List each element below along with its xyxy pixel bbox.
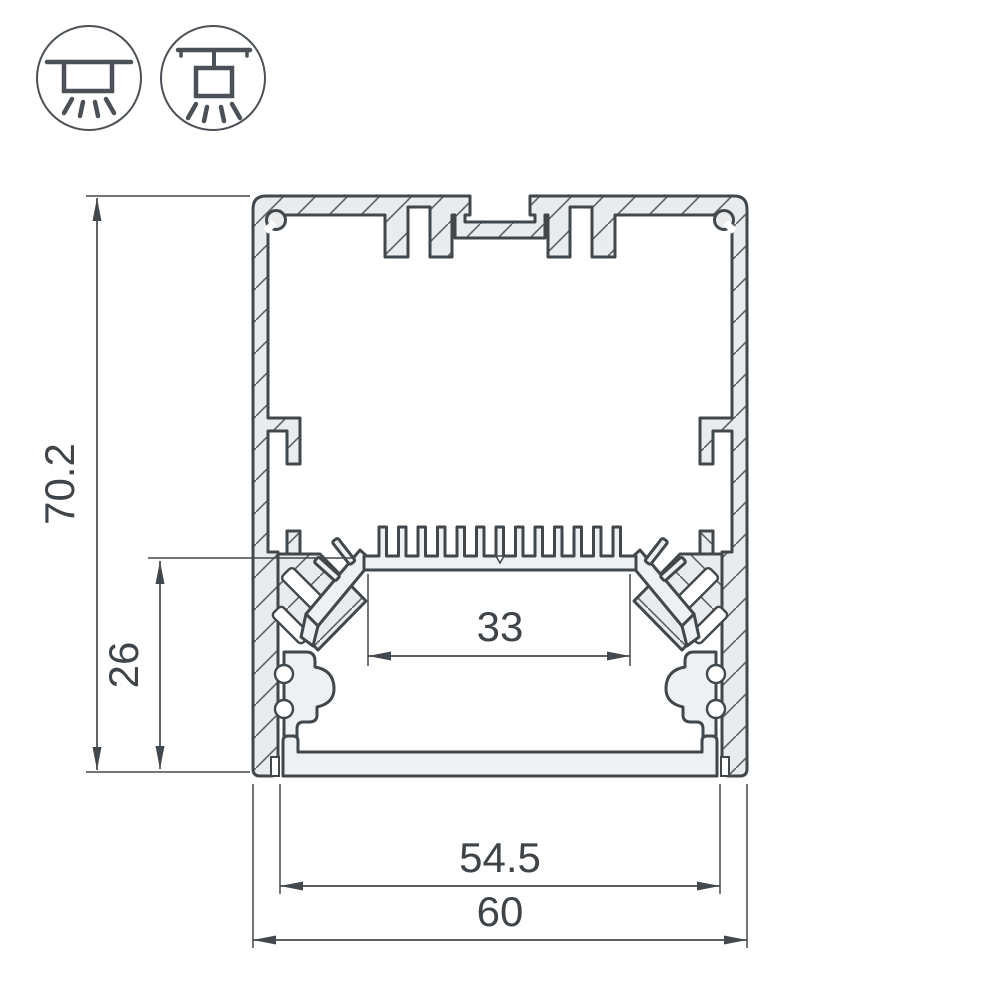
dimension-value-overall-height: 70.2 [36, 443, 83, 525]
dimension-led-area-width: 33 [368, 574, 630, 666]
ledge-post [287, 531, 300, 554]
pendant-mount-light-icon [161, 26, 265, 130]
diffuser-clip [284, 652, 334, 747]
heatsink-fin-angled [332, 538, 355, 565]
lamp-body [196, 68, 232, 96]
light-rays [64, 99, 114, 116]
technical-drawing: 70.2 26 33 54.5 60 [0, 0, 1000, 1000]
mounting-icons [37, 26, 265, 130]
profile-side-details [263, 211, 372, 777]
clip-notch [275, 665, 293, 683]
dimension-value-inner-width: 54.5 [459, 834, 541, 881]
lamp-body [64, 62, 112, 91]
dimension-value-lower-height: 26 [100, 642, 147, 689]
surface-mount-light-icon [37, 26, 141, 130]
clip-notch [275, 700, 293, 718]
icon-circle [161, 26, 265, 130]
light-rays [188, 104, 240, 121]
profile-cross-section [253, 196, 747, 776]
dimension-value-overall-width: 60 [477, 888, 524, 935]
dimension-value-led-area-width: 33 [477, 603, 524, 650]
foot-slot [271, 757, 279, 776]
diffuser-tray [283, 736, 717, 776]
icon-circle [37, 26, 141, 130]
dimension-inner-width: 54.5 [280, 784, 720, 894]
